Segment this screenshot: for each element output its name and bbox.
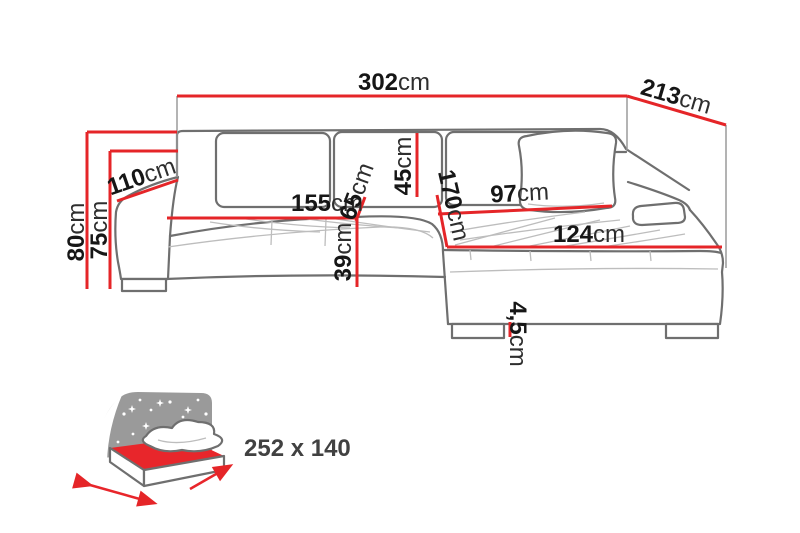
seat-front-edge [170,216,448,324]
sleeping-function-icon [90,392,230,503]
bed-width-arrow [90,485,154,503]
dim-seat-height-label: 39cm [330,223,357,282]
dim-chaise-width-label: 97cm [490,178,550,208]
sleeping-area-label: 252 x 140 [244,435,351,462]
chaise-front-seam [450,268,718,272]
base-bottom-edge [166,275,445,279]
chaise-front-edge [443,250,721,253]
dim-total-width-label: 302cm [358,69,430,96]
chaise-foot-left [452,324,504,338]
chaise-foot-right [666,324,718,338]
sofa-dimension-diagram: 302cm 213cm 80cm 75cm 110cm 155cm 65cm 4… [0,0,800,533]
left-foot [122,279,166,291]
dim-backrest-height-label: 45cm [390,137,417,196]
dim-chaise-front-width-label: 124cm [553,221,625,248]
dim-armrest-height-label: 75cm [86,201,113,260]
right-armrest-pad [633,203,685,225]
dim-total-depth-label: 213cm [638,74,715,120]
sofa-outline [115,129,723,338]
dim-leg-height-label: 4,5cm [504,301,531,366]
